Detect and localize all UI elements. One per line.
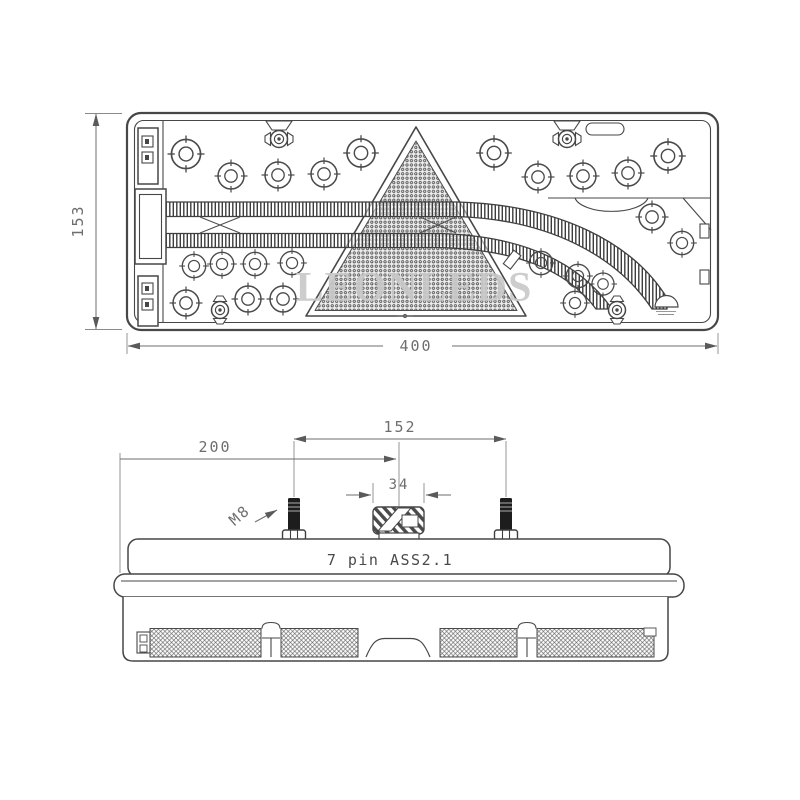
terminal-block-top: [138, 128, 158, 184]
led-circle: [612, 157, 645, 190]
mounting-flange: [114, 574, 684, 597]
mounting-screw: [553, 131, 581, 148]
bottom-right-marks: [656, 312, 676, 315]
mounting-screw: [212, 296, 229, 324]
gasket-segment: [150, 629, 261, 658]
led-circle: [240, 249, 270, 279]
gasket-segment: [537, 629, 654, 658]
led-circle: [170, 287, 203, 320]
watermark-text: LEONLEDS: [296, 265, 533, 311]
led-circle: [522, 161, 555, 194]
front-view-drawing: 153: [69, 113, 718, 355]
right-section-arc: [575, 198, 648, 211]
led-circle: [179, 251, 209, 281]
led-circle: [667, 228, 697, 258]
led-circle: [308, 158, 341, 191]
dim-offset-label: 200: [198, 438, 231, 456]
dim-stud-spacing-label: 152: [383, 418, 416, 436]
led-circle: [232, 283, 265, 316]
led-circle: [343, 135, 379, 171]
screw-tab: [266, 121, 292, 130]
stud-thread-callout: M8: [225, 501, 277, 529]
led-circle: [215, 160, 248, 193]
mounting-screw: [265, 131, 293, 148]
top-edge-notch: [586, 123, 624, 135]
lamp-technical-drawing-page: 153: [0, 0, 800, 800]
stud-thread-label: M8: [225, 501, 253, 529]
led-circle: [567, 160, 600, 193]
pin-connector: [373, 507, 424, 541]
dim-height-label: 153: [69, 204, 87, 237]
right-wall-clip-lower: [700, 270, 709, 284]
led-circle: [168, 136, 205, 173]
led-circle: [476, 135, 512, 171]
right-wall-clip-upper: [700, 224, 709, 238]
led-circle: [262, 159, 295, 192]
gasket-segment: [281, 629, 358, 658]
cable-connector-left: [135, 189, 166, 264]
mounting-stud-left: [283, 498, 306, 540]
mounting-stud-right: [495, 498, 518, 540]
dim-width-400: 400: [127, 333, 718, 355]
led-circle: [267, 283, 300, 316]
led-circle: [207, 249, 237, 279]
screw-tab: [554, 121, 580, 130]
dim-width-label: 400: [399, 337, 432, 355]
dim-connector-width-label: 34: [389, 477, 410, 493]
lamp-technical-drawing: 153: [0, 0, 800, 800]
stud-callout-arrow: [255, 510, 277, 522]
mounting-screw: [609, 296, 626, 324]
terminal-block-bottom: [138, 276, 158, 326]
dim-connector-width-34: 34: [346, 477, 451, 503]
gasket-segment: [440, 629, 517, 658]
led-circle: [650, 138, 686, 174]
gasket-center-mound: [366, 639, 430, 658]
top-view-drawing: 152 200 34 M8: [114, 418, 684, 661]
gasket-end-notch: [644, 628, 656, 636]
connector-type-label: 7 pin ASS2.1: [327, 551, 453, 569]
dim-height-153: 153: [69, 114, 122, 330]
